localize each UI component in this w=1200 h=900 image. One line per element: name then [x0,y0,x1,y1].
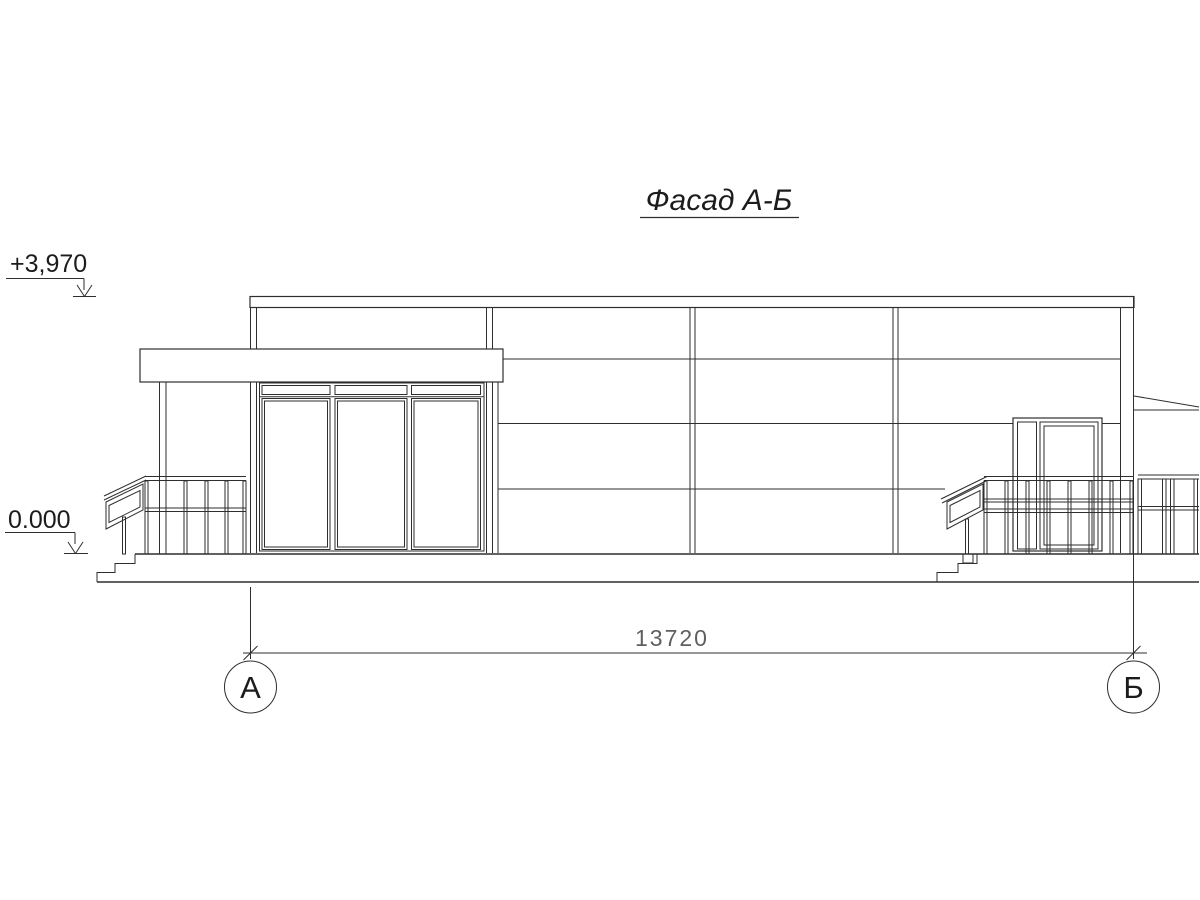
wall-structure [251,307,1121,553]
elevation-mark-ground: 0.000 [5,506,88,554]
elevation-roof-label: +3,970 [10,250,87,278]
platform-and-steps [97,554,1199,582]
terrace-railing [1138,475,1199,554]
dimension-line: 13720 [243,587,1147,660]
porch-column [160,382,167,554]
dimension-value: 13720 [635,625,709,651]
down-arrow-icon [68,542,76,554]
left-steps [97,554,135,582]
page-title: Фасад А-Б [646,184,793,217]
entrance-canopy [140,349,503,382]
right-railing-foot [963,554,973,563]
facade-drawing: +3,970 0.000 13720 А Б Фасад А-Б [0,0,1200,900]
elevation-ground-label: 0.000 [8,506,71,534]
axis-label-a: А [240,670,261,705]
axis-label-b: Б [1123,670,1143,705]
drawing-title: Фасад А-Б [640,184,799,218]
left-porch-railing [104,476,246,554]
roof-parapet [250,297,1134,308]
entrance-glazing [260,383,485,551]
down-arrow-icon [77,285,85,297]
right-steps [937,554,977,582]
elevation-mark-roof: +3,970 [6,250,96,297]
axis-markers: А Б [225,661,1160,713]
elevation-svg: +3,970 0.000 13720 А Б Фасад А-Б [0,0,1200,900]
right-annex-roof [1134,396,1199,410]
